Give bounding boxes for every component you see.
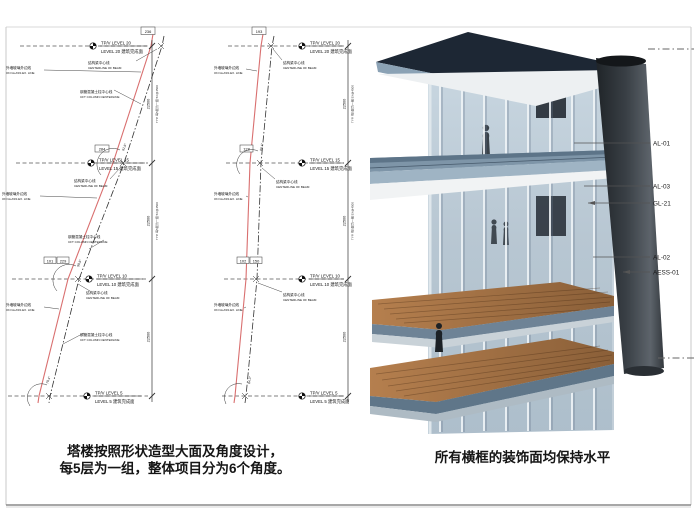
glass-label-en: ON GLASS EX. LINE — [214, 308, 243, 312]
beam-label-en: CENTERLINE OF BEAM — [86, 296, 120, 300]
beam-label-en: CENTERLINE OF BEAM — [283, 298, 317, 302]
level-sublabel: LEVEL 15 建筑完成面 — [310, 165, 353, 172]
level-sublabel: LEVEL 10 建筑完成面 — [97, 281, 140, 288]
span-dimension: 22500 — [147, 99, 151, 110]
angle-dim: 79.4° — [45, 375, 52, 384]
beam-label-cn: 结构梁中心线 — [88, 60, 110, 65]
technical-drawing-canvas: TP/V LEVEL 20 LEVEL 20 建筑完成面 TP/V LEVEL … — [0, 0, 694, 512]
glass-label-cn: 外墙玻璃外边线 — [214, 65, 240, 70]
beam-label-cn: 结构梁中心线 — [74, 178, 96, 183]
level-datum-l20: TP/V LEVEL 20 LEVEL 20 建筑完成面 — [90, 41, 147, 56]
offset-dim: 101 — [47, 258, 54, 263]
level-datum-l20: TP/V LEVEL 20 LEVEL 20 建筑完成面 — [299, 41, 353, 56]
level-sublabel: LEVEL 20 建筑完成面 — [101, 48, 144, 55]
column-centerline — [245, 36, 274, 403]
glass-label-cn: 外墙玻璃外边线 — [214, 302, 240, 307]
left-elevation-diagram: TP/V LEVEL 20 LEVEL 20 建筑完成面 TP/V LEVEL … — [2, 27, 164, 406]
glass-label-cn: 外墙玻璃外边线 — [6, 65, 32, 70]
level-datum-l5: TP/V LEVEL 5 LEVEL 5 建筑完成面 — [299, 391, 350, 406]
column-label-en: CFT COLUMN CENTERLINE — [80, 95, 119, 99]
level-sublabel: LEVEL 20 建筑完成面 — [310, 48, 353, 55]
column-label-en: CFT COLUMN CENTERLINE — [68, 240, 107, 244]
vertical-dimension: 22500 22500 22500 TYP. 每5层为一组 5X@4500 TY… — [147, 40, 160, 402]
level-datum-l10: TP/V LEVEL 10 LEVEL 10 建筑完成面 — [299, 274, 353, 289]
glass-label-en: ON GLASS EX. LINE — [214, 71, 243, 75]
level-label: TP/V LEVEL 10 — [310, 274, 341, 279]
offset-dimensions: 236 284 101 229 81.6° 98.6° 79.4° — [27, 27, 155, 406]
level-label: TP/V LEVEL 15 — [310, 158, 341, 163]
facade-3d-render: AL-01 AL-03 GL-21 AL-02 AESS-01 — [370, 32, 694, 434]
dimension-note: TYP. 每5层为一组 5X@4500 — [154, 202, 159, 240]
interior-dark-panel — [536, 196, 566, 236]
left-caption-line1: 塔楼按照形状造型大面及角度设计， — [30, 443, 320, 460]
angle-dim: 81.6° — [121, 142, 128, 151]
beam-label-cn: 结构梁中心线 — [283, 292, 305, 297]
glass-label-cn: 外墙玻璃外边线 — [6, 302, 32, 307]
callout-aess-01: AESS-01 — [653, 270, 680, 277]
level-label: TP/V LEVEL 20 — [101, 41, 132, 46]
level-label: TP/V LEVEL 5 — [310, 391, 338, 396]
level-sublabel: LEVEL 5 建筑完成面 — [310, 398, 350, 405]
beam-label-en: CENTERLINE OF BEAM — [283, 66, 317, 70]
beam-centerline-labels: 结构梁中心线 CENTERLINE OF BEAM 结构梁中心线 CENTERL… — [258, 49, 317, 302]
angle-dim: 98.6° — [76, 258, 83, 267]
glass-label-cn: 外墙玻璃外边线 — [2, 191, 28, 196]
span-dimension: 22500 — [343, 332, 347, 343]
beam-label-en: CENTERLINE OF BEAM — [74, 184, 108, 188]
angle-dim: 88.4° — [259, 142, 264, 151]
column-label-cn: 钢管混凝土柱中心线 — [68, 234, 101, 239]
level-label: TP/V LEVEL 20 — [310, 41, 341, 46]
document-page: TP/V LEVEL 20 LEVEL 20 建筑完成面 TP/V LEVEL … — [0, 0, 694, 512]
offset-dim: 193 — [256, 29, 263, 34]
column-label-cn: 钢管混凝土柱中心线 — [80, 89, 113, 94]
callout-gl-21: GL-21 — [653, 201, 671, 208]
glass-label-en: ON GLASS EX. LINE — [2, 197, 31, 201]
level-datum-l15: TP/V LEVEL 15 LEVEL 15 建筑完成面 — [299, 158, 353, 173]
column-label-en: CFT COLUMN CENTERLINE — [80, 338, 119, 342]
beam-intersection-marks — [242, 43, 274, 399]
left-caption: 塔楼按照形状造型大面及角度设计， 每5层为一组，整体项目分为6个角度。 — [30, 443, 320, 477]
glass-edge-labels: 外墙玻璃外边线 ON GLASS EX. LINE 外墙玻璃外边线 ON GLA… — [214, 65, 257, 312]
right-caption: 所有横框的装饰面均保持水平 — [395, 449, 650, 466]
dimension-note: TYP. 每5层为一组 5X@4500 — [154, 85, 159, 123]
glass-label-cn: 外墙玻璃外边线 — [214, 191, 240, 196]
span-dimension: 22500 — [147, 216, 151, 227]
level-sublabel: LEVEL 15 建筑完成面 — [99, 165, 142, 172]
beam-label-cn: 结构梁中心线 — [276, 179, 298, 184]
offset-dim: 236 — [145, 29, 152, 34]
middle-elevation-diagram: TP/V LEVEL 20 LEVEL 20 建筑完成面 TP/V LEVEL … — [214, 27, 355, 405]
level-sublabel: LEVEL 10 建筑完成面 — [310, 281, 353, 288]
level-label: TP/V LEVEL 15 — [99, 158, 130, 163]
beam-label-en: CENTERLINE OF BEAM — [276, 185, 310, 189]
level-label: TP/V LEVEL 5 — [95, 391, 123, 396]
level-datum-l10: TP/V LEVEL 10 LEVEL 10 建筑完成面 — [86, 274, 143, 289]
offset-dim: 229 — [60, 258, 67, 263]
level-datum-l5: TP/V LEVEL 5 LEVEL 5 建筑完成面 — [84, 391, 141, 406]
dimension-note: TYP. 每5层为一组 5X@4500 — [350, 202, 355, 240]
column-label-cn: 钢管混凝土柱中心线 — [80, 332, 113, 337]
callout-al-03: AL-03 — [653, 184, 670, 191]
beam-centerline-labels: 结构梁中心线 CENTERLINE OF BEAM 结构梁中心线 CENTERL… — [74, 49, 157, 300]
glass-label-en: ON GLASS EX. LINE — [214, 197, 243, 201]
beam-label-cn: 结构梁中心线 — [283, 60, 305, 65]
glass-label-en: ON GLASS EX. LINE — [6, 71, 35, 75]
callout-al-01: AL-01 — [653, 141, 670, 148]
span-dimension: 22500 — [343, 99, 347, 110]
callout-al-02: AL-02 — [653, 255, 670, 262]
left-caption-line2: 每5层为一组，整体项目分为6个角度。 — [30, 460, 320, 477]
level-label: TP/V LEVEL 10 — [97, 274, 128, 279]
offset-dimensions: 193 128 102 150 88.4° 84.3° — [224, 27, 266, 404]
span-dimension: 22500 — [147, 332, 151, 343]
cft-column-labels: 钢管混凝土柱中心线 CFT COLUMN CENTERLINE 钢管混凝土柱中心… — [63, 89, 141, 344]
level-sublabel: LEVEL 5 建筑完成面 — [95, 398, 135, 405]
dimension-note: TYP. 每5层为一组 5X@4500 — [350, 85, 355, 123]
glass-edge-line — [234, 34, 263, 403]
beam-label-en: CENTERLINE OF BEAM — [88, 66, 122, 70]
glass-label-en: ON GLASS EX. LINE — [6, 308, 35, 312]
level-datum-l15: TP/V LEVEL 15 LEVEL 15 建筑完成面 — [88, 158, 145, 173]
angle-dim: 84.3° — [247, 375, 252, 384]
span-dimension: 22500 — [343, 216, 347, 227]
vertical-dimension: 22500 22500 22500 TYP. 每5层为一组 5X@4500 TY… — [343, 40, 355, 402]
offset-dim: 150 — [253, 258, 260, 263]
offset-dim: 102 — [240, 258, 247, 263]
